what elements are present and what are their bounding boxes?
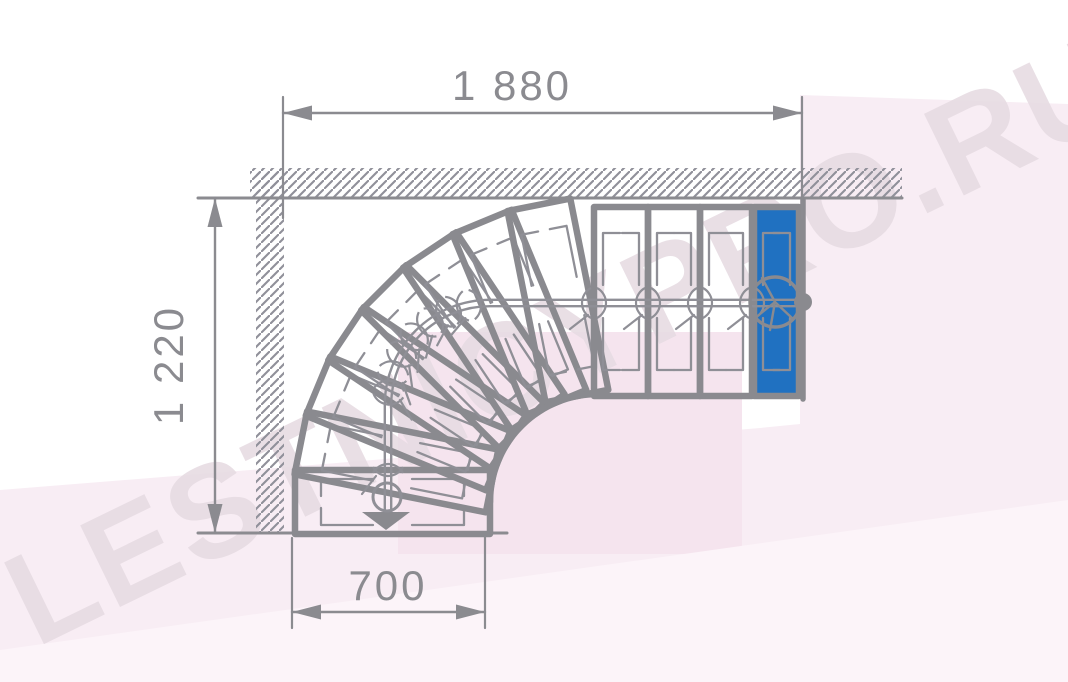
stair-step-highlighted [754,207,799,396]
wall-top-hatch [250,168,902,198]
walking-start-dot [794,293,812,311]
dimension-label-left: 1 220 [145,305,192,425]
stair-plan-drawing: LESTNICYPRO.RU 1 880 1 220 700 [0,0,1068,682]
dimension-label-bottom: 700 [348,562,427,609]
wall-left-hatch [256,170,284,533]
dimension-label-top: 1 880 [452,62,572,109]
stair-plan-svg: LESTNICYPRO.RU 1 880 1 220 700 [0,0,1068,682]
